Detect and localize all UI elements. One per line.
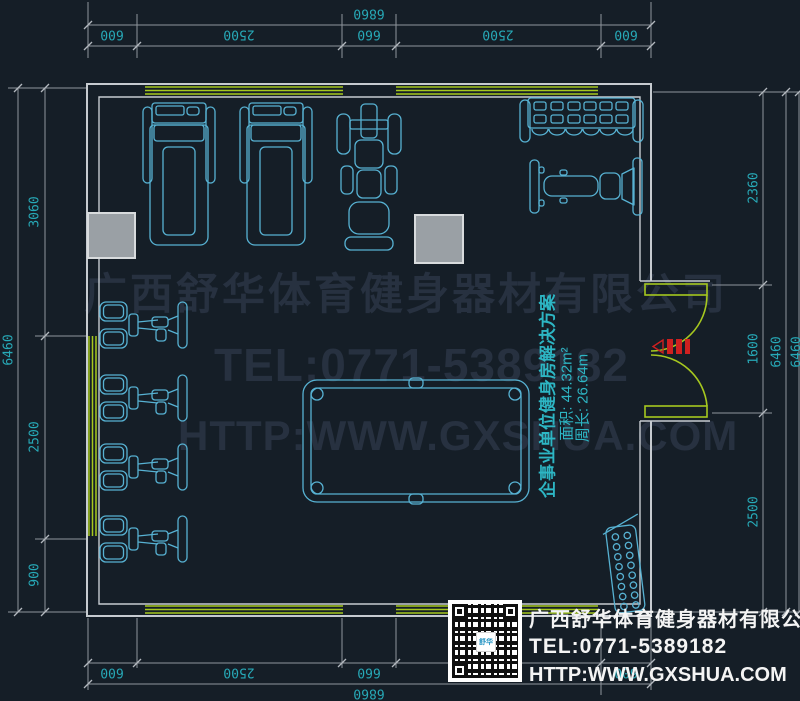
- walls: [87, 84, 710, 616]
- dim-right-seg-2: 1600: [747, 333, 762, 364]
- dim-top-seg-4: 2500: [482, 27, 513, 42]
- qr-finder-icon: [503, 604, 518, 619]
- dim-top-overall: 6860: [353, 6, 384, 21]
- treadmill-2: [240, 103, 312, 245]
- pillar-center: [415, 215, 463, 263]
- strength-machine-3: [100, 444, 187, 490]
- pillars: [88, 213, 463, 263]
- dim-left-overall: 6460: [2, 334, 17, 365]
- windows: [89, 87, 598, 613]
- dumbbell-rack: [520, 98, 643, 142]
- weight-bench: [530, 158, 642, 215]
- strength-machine-4: [100, 516, 187, 562]
- dim-left-seg-1: 3060: [28, 196, 43, 227]
- qr-finder-icon: [452, 663, 467, 678]
- entrance-marker: [653, 339, 690, 354]
- dim-bottom-seg-1: 600: [100, 665, 123, 680]
- qr-code: 舒华: [448, 600, 522, 682]
- dim-top-seg-5: 600: [614, 27, 637, 42]
- dim-right-overall: 6460: [770, 336, 785, 367]
- dimension-ticks: [14, 21, 800, 688]
- multi-gym-machine: [337, 104, 401, 250]
- qr-finder-icon: [452, 604, 467, 619]
- dim-right-seg-3: 2500: [747, 496, 762, 527]
- dim-left-seg-3: 900: [28, 563, 43, 586]
- plan-perimeter: 周长: 26.64m: [572, 354, 593, 442]
- qr-pattern: 舒华: [452, 604, 518, 678]
- dim-bottom-seg-3: 660: [357, 665, 380, 680]
- dim-top-seg-1: 600: [100, 27, 123, 42]
- dim-top-seg-3: 660: [357, 27, 380, 42]
- treadmill-1: [143, 103, 215, 245]
- shuhua-logo: 舒华: [476, 632, 496, 652]
- cad-floor-plan: 广西舒华体育健身器材有限公司 TEL:0771-5389182 HTTP:WWW…: [0, 0, 800, 701]
- plate-rack: [601, 514, 649, 614]
- dim-right-overall-edge: 6460: [790, 336, 800, 367]
- dim-left-seg-2: 2500: [28, 421, 43, 452]
- footer-company: 广西舒华体育健身器材有限公司: [529, 603, 800, 632]
- pillar-left: [88, 213, 135, 258]
- footer-tel: TEL:0771-5389182: [529, 635, 727, 659]
- footer-website: HTTP:WWW.GXSHUA.COM: [529, 664, 787, 687]
- dim-bottom-overall: 6860: [353, 686, 384, 701]
- dim-right-seg-1: 2360: [747, 172, 762, 203]
- dim-top-seg-2: 2500: [223, 27, 254, 42]
- billiard-table: [303, 378, 529, 504]
- strength-machine-2: [100, 375, 187, 421]
- floor-plan-svg: [0, 0, 800, 701]
- strength-machine-1: [100, 302, 187, 348]
- dim-bottom-seg-2: 2500: [223, 665, 254, 680]
